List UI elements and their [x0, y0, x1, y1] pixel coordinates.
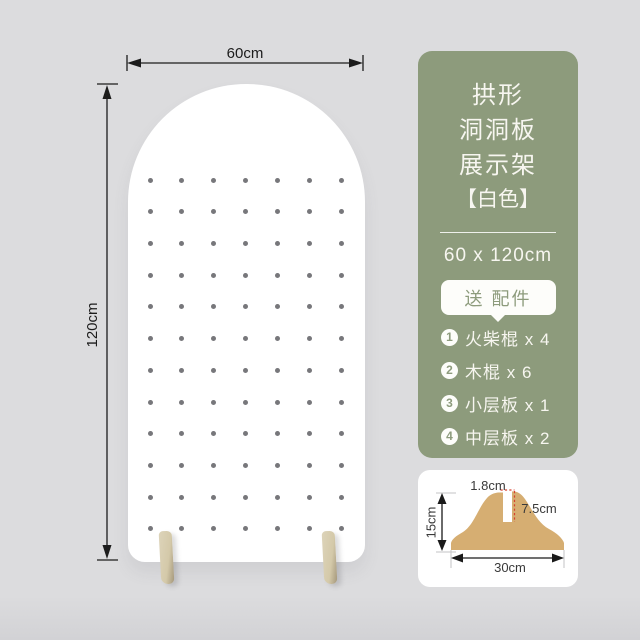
- product-title-line3: 展示架: [418, 148, 578, 183]
- foot-height-label: 15cm: [424, 501, 439, 545]
- accessory-item: 4 中层板 x 2: [441, 424, 578, 448]
- accessory-number-badge: 4: [441, 428, 458, 445]
- accessory-number-badge: 2: [441, 362, 458, 379]
- product-image-canvas: 60cm 120cm 拱形 洞洞板 展示架 【白色】 60 x 120cm 送 …: [0, 0, 640, 640]
- accessory-label: 木棍 x 6: [465, 358, 532, 383]
- slot-depth-label: 7.5cm: [514, 501, 564, 516]
- accessory-item: 1 火柴棍 x 4: [441, 325, 578, 349]
- accessory-label: 火柴棍 x 4: [465, 325, 550, 350]
- board-height-label: 120cm: [84, 295, 100, 355]
- dimension-arrows: [0, 0, 410, 640]
- color-variant-label: 【白色】: [418, 185, 578, 215]
- product-size-label: 60 x 120cm: [418, 244, 578, 268]
- divider-line: [440, 232, 556, 233]
- foot-diagram-card: 1.8cm 7.5cm 15cm 30cm: [418, 470, 578, 587]
- product-info-panel: 拱形 洞洞板 展示架 【白色】 60 x 120cm 送 配件 1 火柴棍 x …: [418, 51, 578, 458]
- accessory-item: 2 木棍 x 6: [441, 358, 578, 382]
- product-title-line2: 洞洞板: [418, 113, 578, 148]
- accessory-number-badge: 1: [441, 329, 458, 346]
- slot-width-label: 1.8cm: [463, 478, 513, 493]
- accessories-list: 1 火柴棍 x 4 2 木棍 x 6 3 小层板 x 1 4 中层板 x 2: [418, 325, 578, 448]
- gift-accessories-badge: 送 配件: [441, 280, 556, 315]
- board-width-label: 60cm: [205, 45, 285, 62]
- accessory-label: 中层板 x 2: [465, 424, 550, 449]
- foot-width-label: 30cm: [480, 560, 540, 575]
- product-title-line1: 拱形: [418, 78, 578, 113]
- accessory-label: 小层板 x 1: [465, 391, 550, 416]
- accessory-number-badge: 3: [441, 395, 458, 412]
- accessory-item: 3 小层板 x 1: [441, 391, 578, 415]
- product-title: 拱形 洞洞板 展示架: [418, 78, 578, 183]
